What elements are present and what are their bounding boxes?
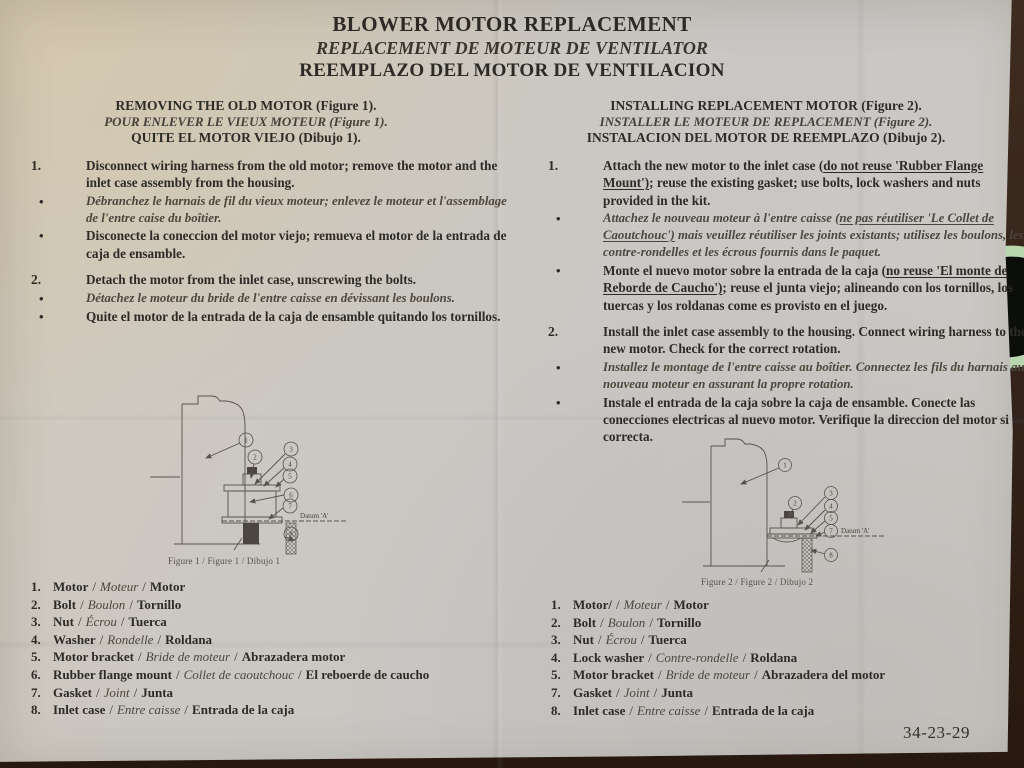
photo-of-instruction-sheet: BLOWER MOTOR REPLACEMENT REPLACEMENT DE … <box>0 0 1024 768</box>
photo-vignette <box>0 0 1024 768</box>
